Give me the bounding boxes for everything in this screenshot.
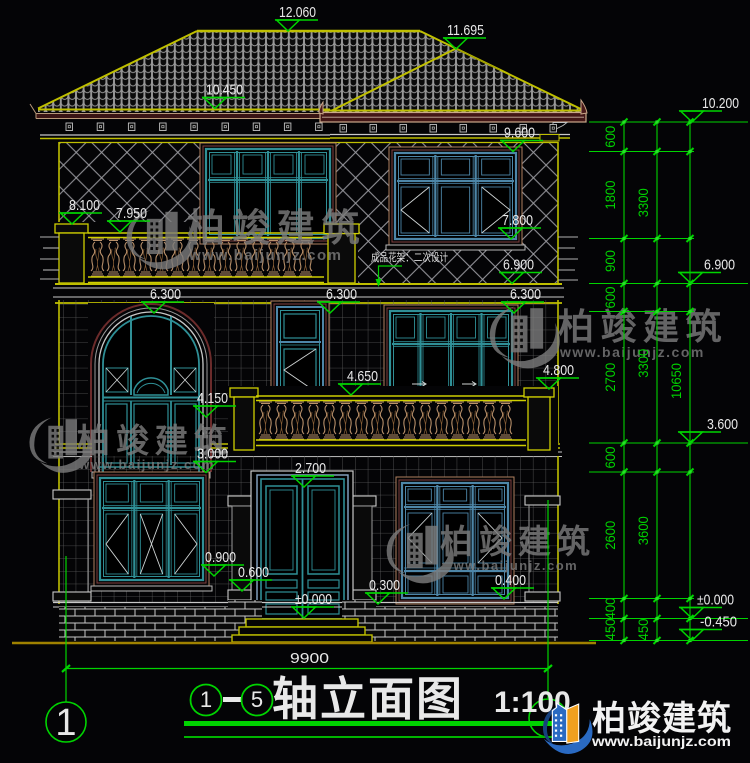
svg-text:10.450: 10.450 (206, 82, 243, 99)
svg-text:600: 600 (602, 446, 618, 468)
svg-text:6.900: 6.900 (704, 257, 735, 274)
svg-text:3300: 3300 (635, 188, 651, 217)
svg-text:2.700: 2.700 (295, 460, 326, 477)
svg-text:-0.450: -0.450 (700, 614, 737, 631)
svg-text:600: 600 (602, 286, 618, 308)
svg-text:600: 600 (602, 126, 618, 148)
svg-text:1: 1 (200, 687, 212, 712)
svg-text:3300: 3300 (635, 349, 651, 378)
svg-text:3.600: 3.600 (707, 416, 738, 433)
svg-text:www.baijunjz.com: www.baijunjz.com (441, 558, 578, 573)
svg-text:成品花架：二次设计: 成品花架：二次设计 (371, 250, 448, 264)
svg-text:10650: 10650 (668, 363, 684, 399)
svg-text:9.600: 9.600 (504, 125, 535, 142)
svg-text:www.baijunjz.com: www.baijunjz.com (78, 457, 215, 472)
svg-text:450: 450 (635, 618, 651, 640)
svg-text:900: 900 (602, 250, 618, 272)
svg-text:5: 5 (251, 687, 263, 712)
svg-text:www.baijunjz.com: www.baijunjz.com (559, 344, 705, 360)
svg-text:0.400: 0.400 (495, 572, 526, 589)
svg-text:www.baijunjz.com: www.baijunjz.com (188, 247, 342, 264)
svg-text:6.300: 6.300 (510, 286, 541, 303)
svg-text:2600: 2600 (602, 521, 618, 550)
svg-text:7.800: 7.800 (502, 212, 533, 229)
svg-text:4.800: 4.800 (543, 362, 574, 379)
svg-text:±0.000: ±0.000 (295, 591, 332, 608)
svg-text:柏竣建筑: 柏竣建筑 (558, 306, 728, 347)
svg-text:www.baijunjz.com: www.baijunjz.com (591, 733, 731, 749)
svg-text:4.150: 4.150 (197, 390, 228, 407)
svg-text:3600: 3600 (635, 516, 651, 545)
svg-text:400: 400 (602, 597, 618, 619)
svg-text:±0.000: ±0.000 (697, 592, 734, 609)
svg-text:7.950: 7.950 (116, 205, 147, 222)
svg-text:8.100: 8.100 (69, 197, 100, 214)
svg-text:12.060: 12.060 (279, 4, 316, 21)
svg-text:柏竣建筑: 柏竣建筑 (440, 523, 596, 560)
svg-text:1: 1 (55, 702, 76, 744)
svg-text:6.900: 6.900 (503, 257, 534, 274)
svg-text:0.300: 0.300 (369, 577, 400, 594)
svg-text:450: 450 (602, 618, 618, 640)
svg-text:0.900: 0.900 (205, 549, 236, 566)
svg-text:6.300: 6.300 (150, 286, 181, 303)
svg-text:6.300: 6.300 (326, 286, 357, 303)
svg-text:10.200: 10.200 (702, 95, 739, 112)
svg-text:1800: 1800 (602, 180, 618, 209)
svg-text:9900: 9900 (290, 650, 329, 667)
svg-text:2700: 2700 (602, 363, 618, 392)
svg-text:4.650: 4.650 (347, 368, 378, 385)
svg-text:0.600: 0.600 (238, 564, 269, 581)
svg-text:柏竣建筑: 柏竣建筑 (187, 208, 366, 250)
svg-text:轴立面图: 轴立面图 (272, 673, 464, 725)
svg-text:11.695: 11.695 (447, 22, 484, 39)
svg-text:3.000: 3.000 (197, 446, 228, 463)
